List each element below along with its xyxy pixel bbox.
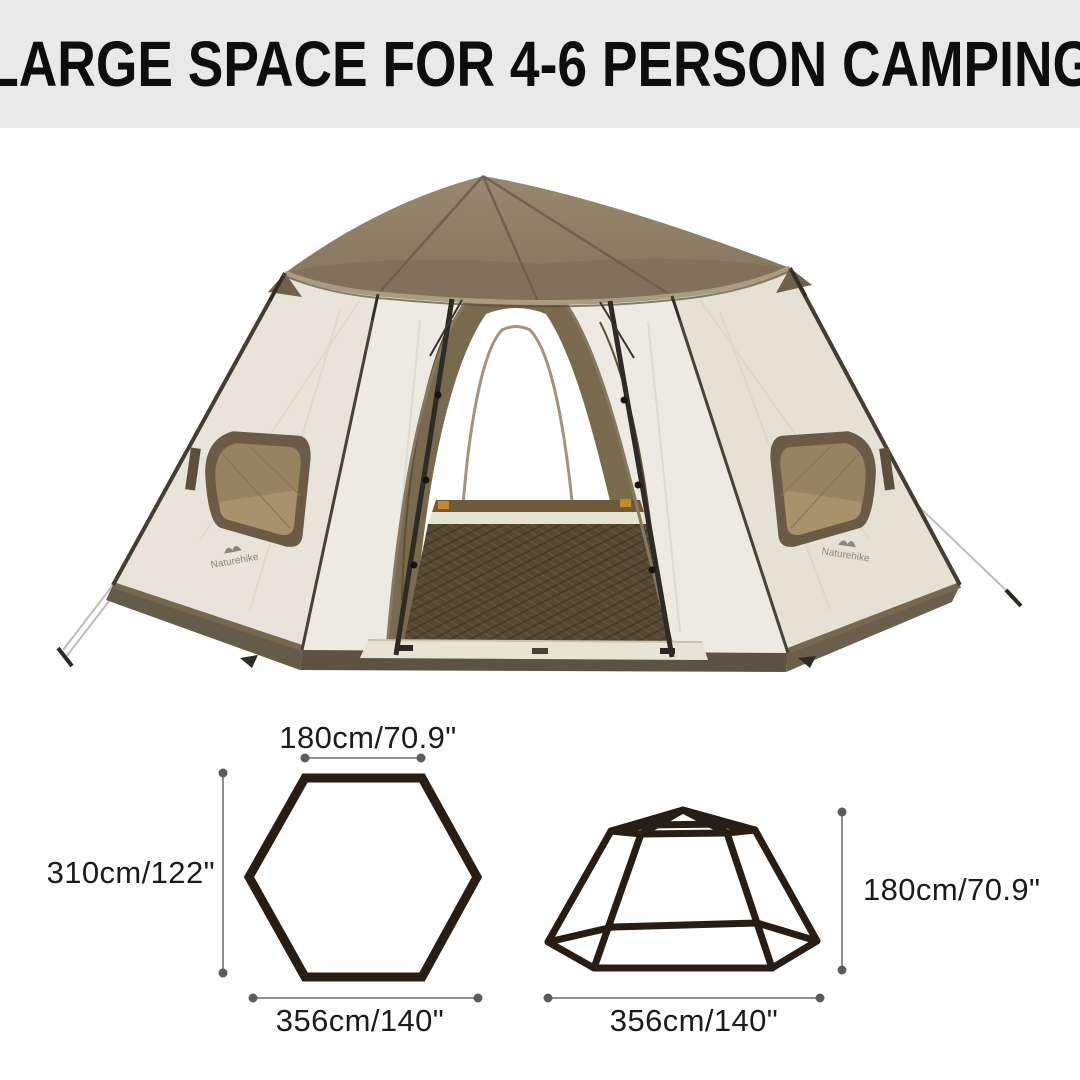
hexagon-top-width-label: 180cm/70.9" [279,722,456,753]
product-infographic: LARGE SPACE FOR 4-6 PERSON CAMPING [0,0,1080,1080]
profile-height-label: 180cm/70.9" [863,874,1040,905]
side-profile-wireframe [548,810,817,968]
hexagon-dim-dots [219,754,483,1003]
hexagon-bottom-width-label: 356cm/140" [276,1005,444,1036]
floor-hexagon-shape [249,778,477,977]
hexagon-dim-lines [223,758,478,998]
profile-width-label: 356cm/140" [610,1005,778,1036]
hexagon-height-label: 310cm/122" [47,857,215,888]
dimension-diagrams [0,0,1080,1080]
